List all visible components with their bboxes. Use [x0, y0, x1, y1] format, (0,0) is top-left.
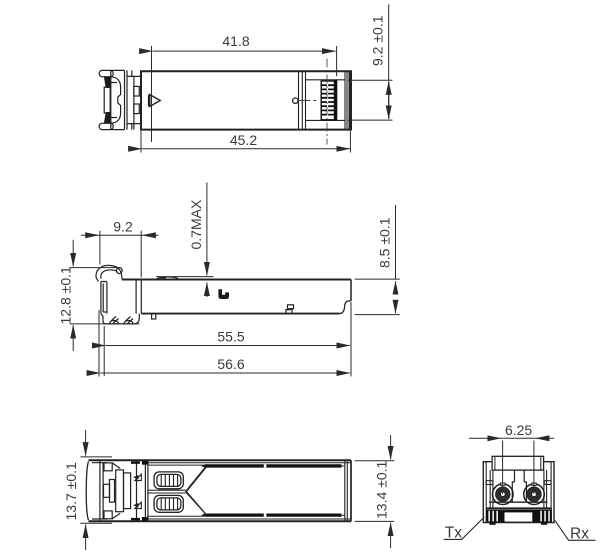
svg-text:13.7 ±0.1: 13.7 ±0.1	[63, 462, 79, 520]
svg-text:41.8: 41.8	[222, 33, 249, 49]
svg-text:9.2: 9.2	[113, 219, 133, 235]
svg-text:Rx: Rx	[570, 526, 589, 543]
svg-text:45.2: 45.2	[230, 132, 257, 148]
svg-text:0.7MAX: 0.7MAX	[188, 199, 204, 249]
svg-text:6.25: 6.25	[505, 422, 532, 438]
svg-text:9.2 ±0.1: 9.2 ±0.1	[370, 15, 386, 66]
svg-text:8.5 ±0.1: 8.5 ±0.1	[377, 217, 393, 268]
svg-text:12.8 ±0.1: 12.8 ±0.1	[58, 266, 74, 324]
svg-text:13.4 ±0.1: 13.4 ±0.1	[374, 461, 390, 519]
svg-text:Tx: Tx	[445, 525, 462, 542]
svg-text:56.6: 56.6	[217, 356, 244, 372]
svg-text:55.5: 55.5	[217, 329, 244, 345]
